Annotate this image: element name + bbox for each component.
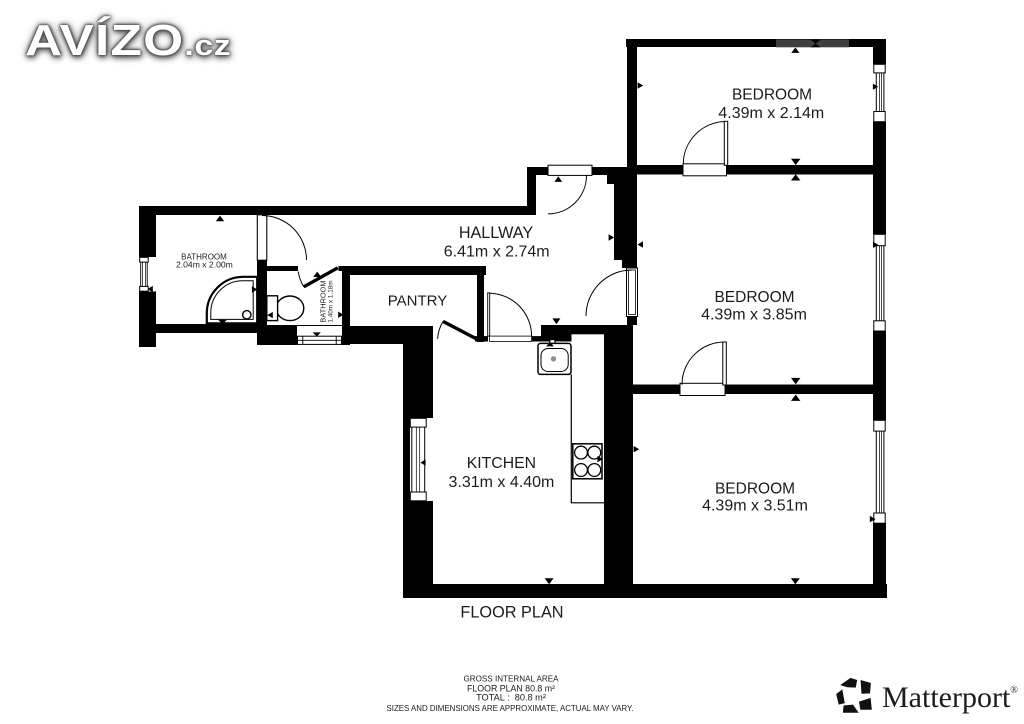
svg-text:HALLWAY: HALLWAY (459, 224, 534, 242)
svg-text:4.39m x 3.85m: 4.39m x 3.85m (701, 306, 807, 323)
svg-text:GROSS INTERNAL AREA: GROSS INTERNAL AREA (463, 675, 559, 684)
svg-text:BEDROOM: BEDROOM (715, 481, 795, 498)
svg-text:BEDROOM: BEDROOM (732, 87, 812, 104)
svg-text:4.39m x 2.14m: 4.39m x 2.14m (718, 105, 824, 122)
svg-text:KITCHEN: KITCHEN (467, 455, 536, 472)
svg-text:PANTRY: PANTRY (388, 293, 447, 310)
svg-text:BATHROOM: BATHROOM (319, 280, 328, 322)
svg-text:6.41m x 2.74m: 6.41m x 2.74m (444, 244, 550, 261)
svg-text:Matterport®: Matterport® (882, 681, 1018, 714)
svg-text:1.40m x 1.18m: 1.40m x 1.18m (328, 280, 335, 322)
svg-text:FLOOR PLAN: FLOOR PLAN (460, 604, 563, 622)
svg-text:4.39m x 3.51m: 4.39m x 3.51m (702, 497, 808, 514)
svg-text:SIZES AND DIMENSIONS ARE APPRO: SIZES AND DIMENSIONS ARE APPROXIMATE, AC… (386, 704, 633, 713)
svg-text:2.04m x 2.00m: 2.04m x 2.00m (176, 260, 233, 270)
svg-text:3.31m x 4.40m: 3.31m x 4.40m (448, 474, 554, 491)
svg-text:BEDROOM: BEDROOM (714, 289, 794, 306)
svg-text:TOTAL : 80.8 m²: TOTAL : 80.8 m² (476, 693, 546, 703)
